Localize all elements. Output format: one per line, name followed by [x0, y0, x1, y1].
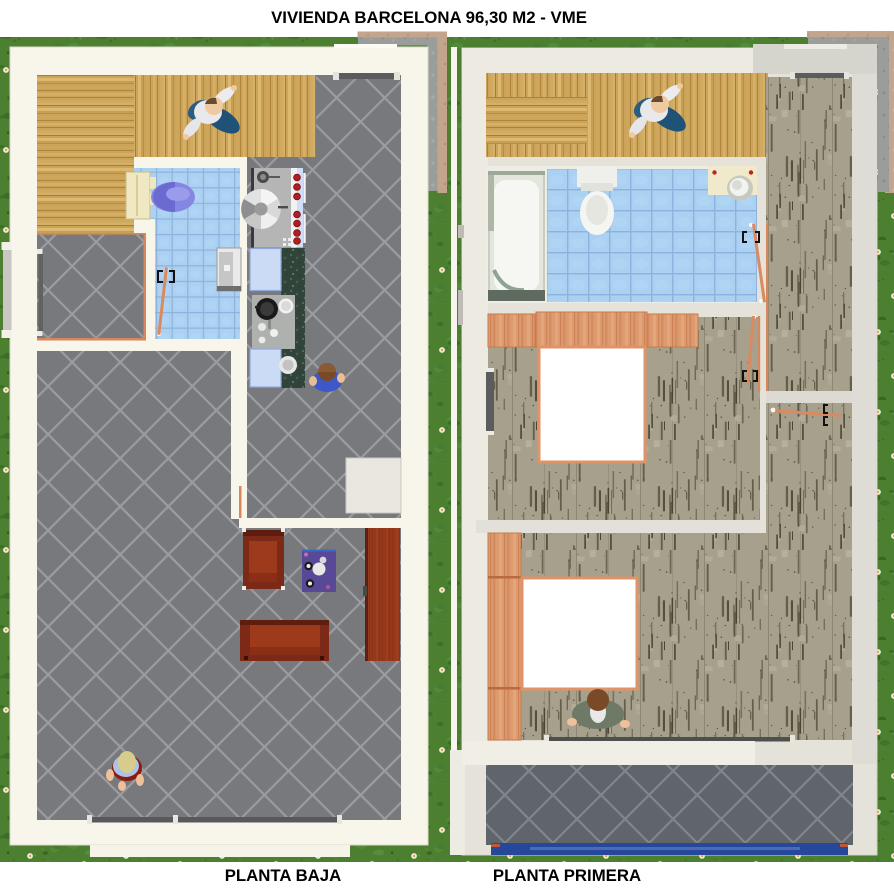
- svg-text:VIVIENDA BARCELONA 96,30 M2 -: VIVIENDA BARCELONA 96,30 M2 - VME: [271, 8, 587, 27]
- svg-text:PLANTA PRIMERA: PLANTA PRIMERA: [493, 866, 641, 885]
- svg-text:PLANTA BAJA: PLANTA BAJA: [225, 866, 342, 885]
